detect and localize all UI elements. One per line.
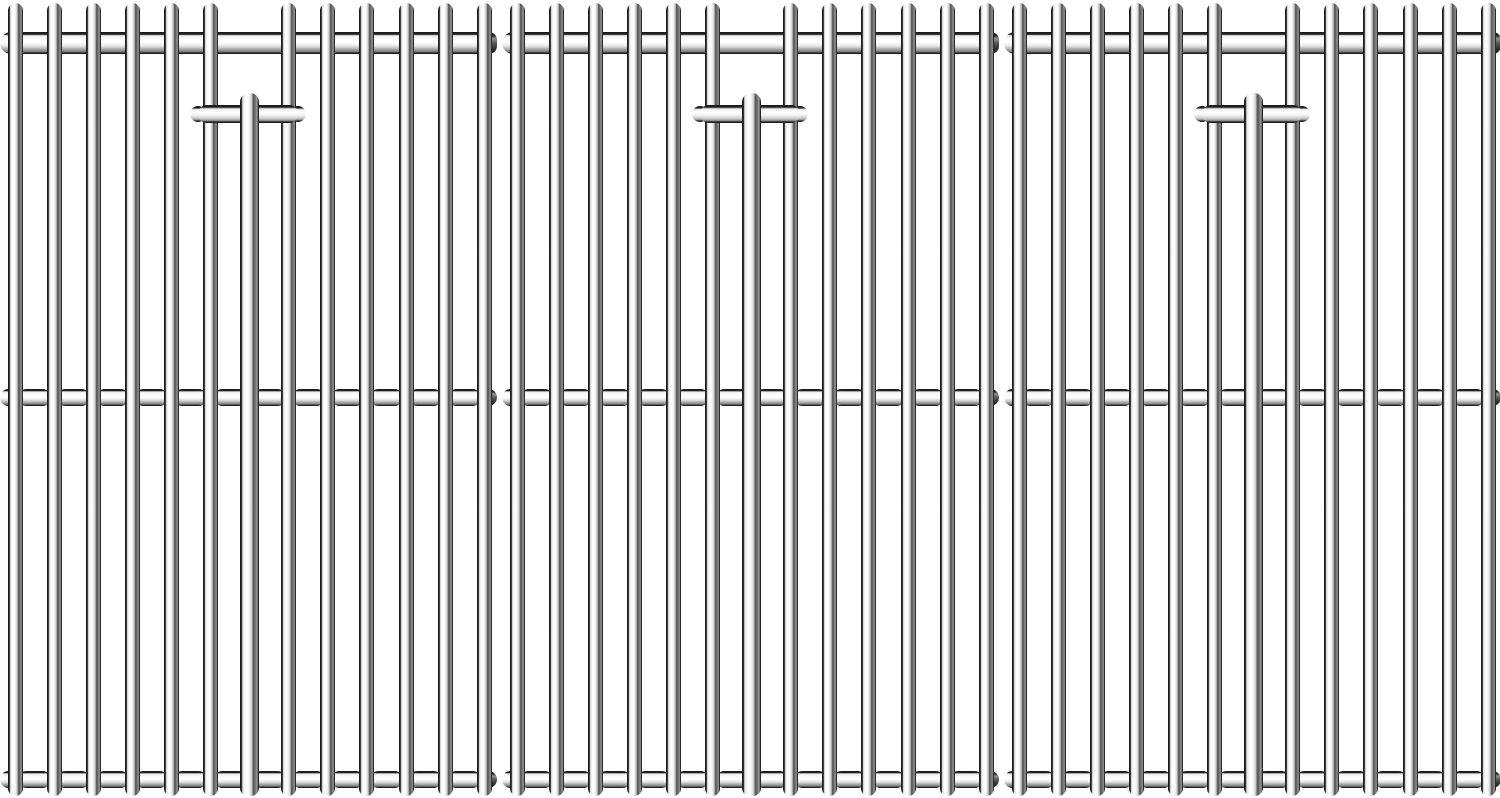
grate-1 <box>0 0 497 798</box>
grate-3-bar-11 <box>1403 3 1418 796</box>
grate-2-bar-3 <box>588 3 603 796</box>
grate-3-bar-5 <box>1168 3 1183 796</box>
grate-1-bar-11 <box>399 3 414 796</box>
grate-2-bar-1 <box>510 3 525 796</box>
grate-2-bar-2 <box>549 3 564 796</box>
grate-3-bar-3 <box>1090 3 1105 796</box>
grate-1-bar-10 <box>359 3 374 796</box>
grate-3-bar-9 <box>1324 3 1339 796</box>
grate-3-top-crossrod <box>1004 32 1500 54</box>
grate-2-bar-10 <box>861 3 876 796</box>
grate-1-bar-2 <box>47 3 62 796</box>
grate-1-bar-12 <box>438 3 453 796</box>
grate-3-center-support-rod <box>1244 93 1263 796</box>
grate-2-bar-4 <box>627 3 642 796</box>
grate-2-bar-9 <box>822 3 837 796</box>
grate-3 <box>1004 0 1500 798</box>
grate-3-bar-12 <box>1442 3 1457 796</box>
grate-1-center-support-rod <box>240 93 259 796</box>
grate-2-bar-11 <box>901 3 916 796</box>
grate-2-center-support-rod <box>742 93 761 796</box>
grate-1-bar-13 <box>477 3 492 796</box>
grate-1-bar-4 <box>125 3 140 796</box>
grate-3-bar-4 <box>1129 3 1144 796</box>
grate-3-bar-10 <box>1363 3 1378 796</box>
grate-1-bar-3 <box>86 3 101 796</box>
grate-2-bar-13 <box>979 3 994 796</box>
grate-3-bar-1 <box>1012 3 1027 796</box>
grate-1-top-crossrod <box>0 32 497 54</box>
grate-3-bar-2 <box>1051 3 1066 796</box>
grate-1-bar-5 <box>164 3 179 796</box>
grate-2-bar-5 <box>666 3 681 796</box>
grate-2-bar-12 <box>940 3 955 796</box>
grill-grates-product-illustration <box>0 0 1500 798</box>
grate-2-top-crossrod <box>502 32 999 54</box>
grate-1-bar-1 <box>8 3 23 796</box>
grate-3-bar-13 <box>1481 3 1496 796</box>
grate-1-bar-9 <box>320 3 335 796</box>
grate-2 <box>502 0 999 798</box>
